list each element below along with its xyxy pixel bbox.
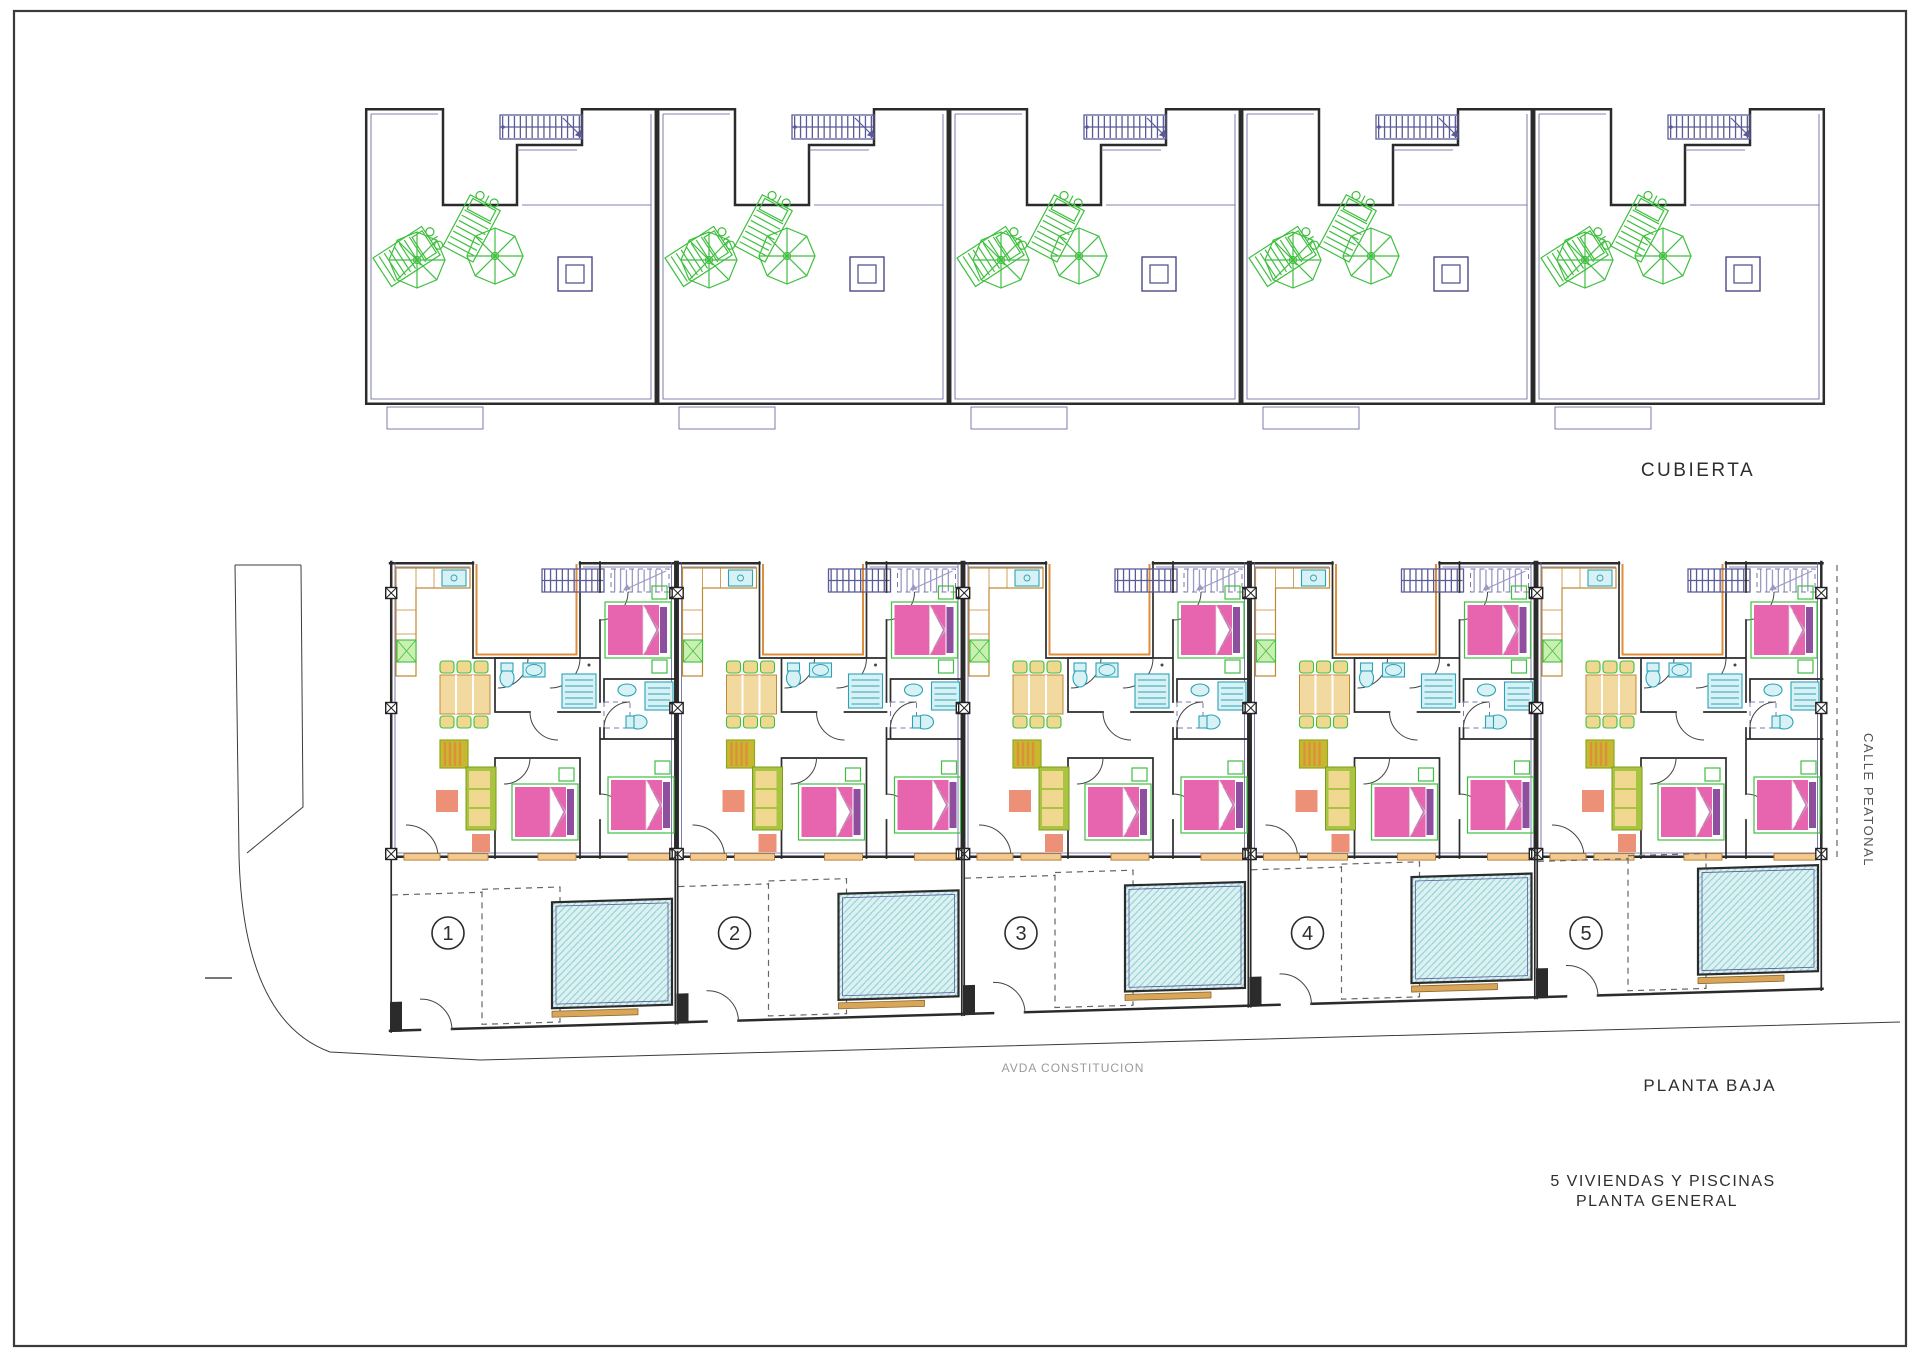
ground-plan-label: PLANTA BAJA xyxy=(1643,1076,1776,1095)
title-line-2: PLANTA GENERAL xyxy=(1576,1193,1738,1210)
street-right-label: CALLE PEATONAL xyxy=(1861,733,1876,867)
title-line-1: 5 VIVIENDAS Y PISCINAS xyxy=(1550,1173,1775,1190)
unit-2-number: 2 xyxy=(729,923,740,945)
unit-4-number: 4 xyxy=(1302,923,1313,945)
roof-plan-label: CUBIERTA xyxy=(1641,460,1755,481)
unit-1-number: 1 xyxy=(442,923,453,945)
unit-3-number: 3 xyxy=(1015,923,1026,945)
unit-5-number: 5 xyxy=(1580,923,1591,945)
street-bottom-label: AVDA CONSTITUCION xyxy=(1002,1061,1145,1075)
drawing-sheet: CUBIERTA 1 2 3 4 5 PLANTA BAJA CALLE xyxy=(0,0,1920,1357)
floor-plan-drawing: CUBIERTA 1 2 3 4 5 PLANTA BAJA CALLE xyxy=(0,0,1920,1357)
